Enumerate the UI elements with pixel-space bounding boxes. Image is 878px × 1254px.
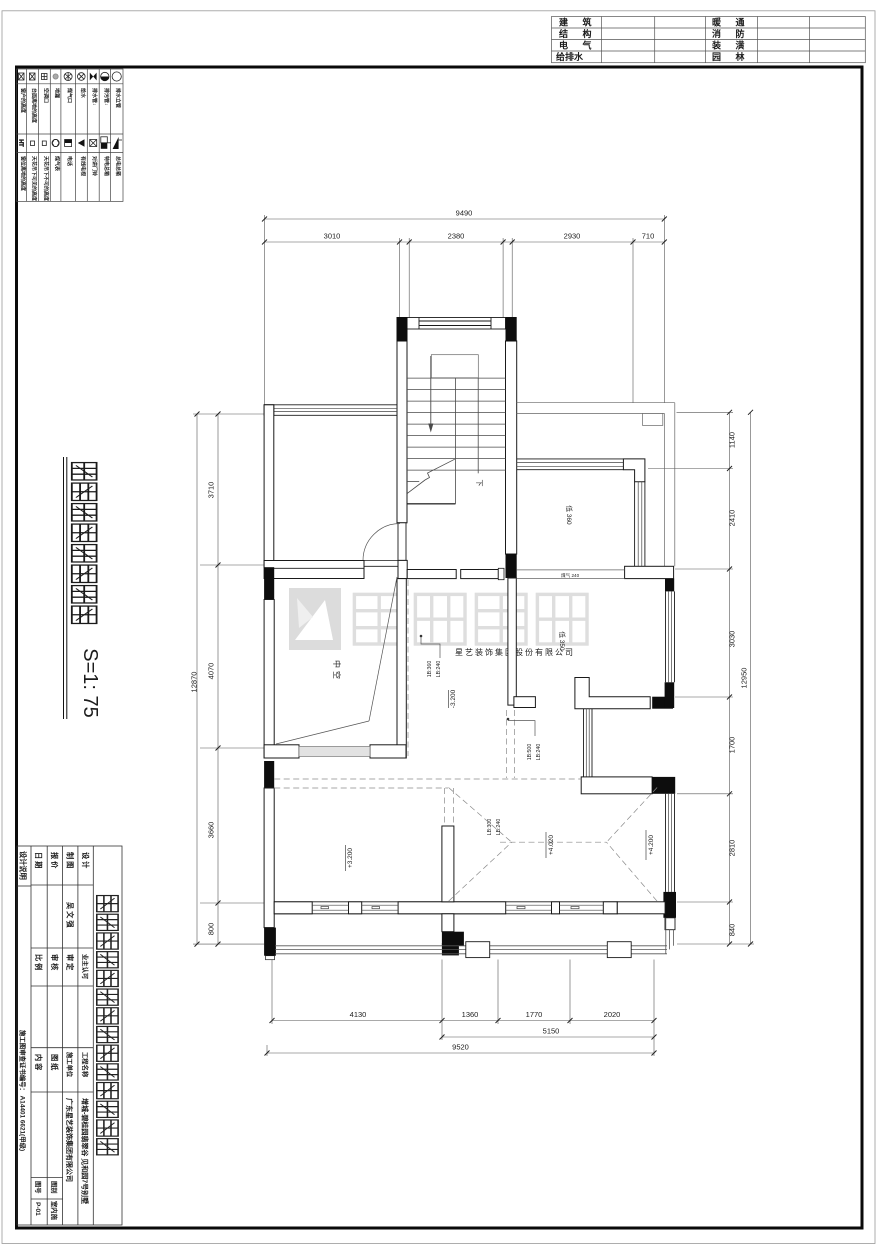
svg-text:施工单位: 施工单位 bbox=[66, 1052, 75, 1078]
svg-text:1770: 1770 bbox=[526, 1010, 543, 1019]
svg-text:台面离地的高度: 台面离地的高度 bbox=[31, 88, 38, 124]
svg-text:图 纸: 图 纸 bbox=[50, 1054, 59, 1071]
svg-text:有线电视: 有线电视 bbox=[79, 156, 86, 176]
svg-text:窗位离地的高度: 窗位离地的高度 bbox=[20, 156, 27, 192]
svg-text:9520: 9520 bbox=[452, 1043, 469, 1052]
svg-text:内 容: 内 容 bbox=[34, 1054, 43, 1071]
svg-text:9490: 9490 bbox=[456, 209, 473, 218]
svg-text:+4.020: +4.020 bbox=[548, 835, 555, 855]
svg-text:800: 800 bbox=[207, 923, 216, 936]
svg-text:报 价: 报 价 bbox=[50, 852, 59, 869]
svg-text:结 构: 结 构 bbox=[559, 28, 598, 39]
svg-text:+4.200: +4.200 bbox=[648, 835, 655, 855]
svg-text:施工图审查证书编号： A14401 6621(甲级): 施工图审查证书编号： A14401 6621(甲级) bbox=[19, 1030, 28, 1151]
svg-text:LB:300: LB:300 bbox=[487, 819, 493, 836]
svg-text:天花吊下可见的高度: 天花吊下可见的高度 bbox=[31, 156, 38, 202]
svg-text:+3.200: +3.200 bbox=[347, 848, 354, 868]
svg-text:P-01: P-01 bbox=[34, 1202, 41, 1216]
svg-text:4070: 4070 bbox=[207, 663, 216, 680]
svg-text:给排水: 给排水 bbox=[556, 51, 584, 62]
svg-text:排污管↓: 排污管↓ bbox=[103, 88, 110, 106]
svg-text:增城-碧桂园翡翠谷 见和园7号别墅: 增城-碧桂园翡翠谷 见和园7号别墅 bbox=[81, 1098, 90, 1204]
svg-text:4130: 4130 bbox=[350, 1010, 367, 1019]
svg-text:1B:360: 1B:360 bbox=[427, 661, 433, 678]
svg-text:1360: 1360 bbox=[462, 1010, 479, 1019]
svg-text:S=1: 75: S=1: 75 bbox=[79, 648, 101, 718]
svg-text:2810: 2810 bbox=[728, 840, 737, 857]
svg-text:5150: 5150 bbox=[543, 1027, 560, 1036]
svg-text:12870: 12870 bbox=[190, 672, 199, 693]
svg-text:840: 840 bbox=[728, 924, 737, 937]
svg-text:2380: 2380 bbox=[448, 232, 465, 241]
svg-text:审 定: 审 定 bbox=[66, 954, 75, 971]
svg-text:1140: 1140 bbox=[728, 432, 737, 448]
svg-text:给水: 给水 bbox=[79, 88, 86, 99]
svg-text:710: 710 bbox=[642, 232, 655, 241]
svg-text:煤气 240: 煤气 240 bbox=[561, 572, 580, 579]
svg-text:图号: 图号 bbox=[34, 1181, 43, 1194]
svg-text:设 计: 设 计 bbox=[81, 852, 90, 869]
svg-text:LB:240: LB:240 bbox=[536, 744, 542, 761]
svg-text:设计说明: 设计说明 bbox=[19, 851, 28, 880]
svg-text:空调口: 空调口 bbox=[42, 88, 49, 103]
svg-text:排水立管: 排水立管 bbox=[115, 88, 122, 108]
svg-text:审 核: 审 核 bbox=[50, 954, 59, 971]
svg-text:3660: 3660 bbox=[207, 822, 216, 839]
svg-text:3010: 3010 bbox=[324, 232, 341, 241]
svg-text:煤气口: 煤气口 bbox=[66, 88, 73, 103]
svg-text:图别: 图别 bbox=[50, 1181, 59, 1194]
svg-text:3030: 3030 bbox=[728, 631, 737, 648]
svg-text:排水管↓: 排水管↓ bbox=[91, 88, 98, 106]
svg-text:2930: 2930 bbox=[564, 232, 581, 241]
svg-text:1B:500: 1B:500 bbox=[527, 744, 533, 761]
svg-text:地漏: 地漏 bbox=[54, 88, 61, 98]
svg-text:室内施: 室内施 bbox=[50, 1201, 59, 1221]
svg-text:园 林: 园 林 bbox=[712, 51, 751, 62]
svg-text:1700: 1700 bbox=[728, 737, 737, 754]
svg-text:天花吊下不可的高度: 天花吊下不可的高度 bbox=[42, 156, 49, 202]
svg-text:建 筑: 建 筑 bbox=[559, 17, 598, 28]
svg-text:2410: 2410 bbox=[728, 510, 737, 527]
svg-text:消 防: 消 防 bbox=[712, 28, 751, 39]
svg-text:电话: 电话 bbox=[66, 156, 73, 166]
svg-text:-3.200: -3.200 bbox=[450, 689, 457, 708]
svg-text:窗户的高度: 窗户的高度 bbox=[20, 88, 27, 114]
svg-text:制 图: 制 图 bbox=[66, 852, 75, 868]
svg-text:特电总箱: 特电总箱 bbox=[103, 156, 110, 176]
svg-text:LB:240: LB:240 bbox=[436, 661, 442, 678]
svg-text:煤气表: 煤气表 bbox=[54, 156, 61, 172]
svg-text:低 350: 低 350 bbox=[558, 631, 567, 651]
svg-text:中空: 中空 bbox=[332, 660, 342, 682]
svg-text:业主认可: 业主认可 bbox=[81, 954, 90, 980]
svg-text:工程名称: 工程名称 bbox=[81, 1052, 90, 1078]
svg-text:日 期: 日 期 bbox=[34, 852, 43, 868]
svg-text:低 360: 低 360 bbox=[565, 505, 574, 525]
svg-text:比 例: 比 例 bbox=[34, 954, 43, 970]
svg-text:下: 下 bbox=[475, 480, 483, 487]
svg-text:装 潢: 装 潢 bbox=[711, 40, 751, 51]
svg-text:广东星艺装饰集团有限公司: 广东星艺装饰集团有限公司 bbox=[65, 1098, 74, 1182]
svg-text:暖 通: 暖 通 bbox=[712, 17, 751, 28]
svg-text:LB:240: LB:240 bbox=[496, 819, 502, 836]
svg-text:电 气: 电 气 bbox=[559, 40, 598, 51]
svg-text:吴 文 强: 吴 文 强 bbox=[66, 902, 75, 928]
svg-text:总电总箱: 总电总箱 bbox=[115, 156, 122, 176]
svg-text:对讲门铃: 对讲门铃 bbox=[91, 156, 98, 177]
svg-text:HT: HT bbox=[18, 139, 24, 147]
svg-text:3710: 3710 bbox=[207, 482, 216, 499]
svg-text:2020: 2020 bbox=[604, 1010, 621, 1019]
svg-text:12950: 12950 bbox=[740, 668, 749, 689]
